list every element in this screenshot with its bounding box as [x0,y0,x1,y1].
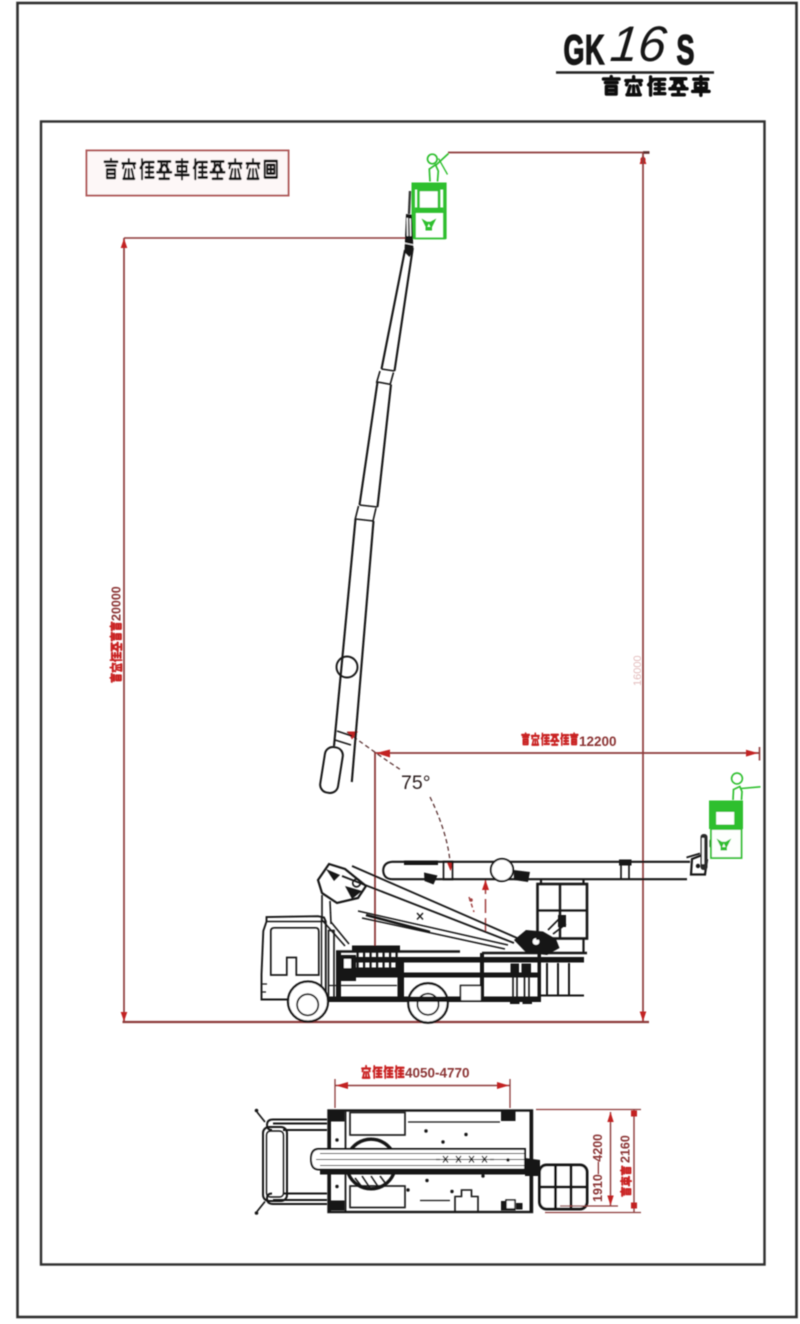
svg-text:16: 16 [608,16,670,72]
svg-text:75°: 75° [401,772,431,794]
svg-text:S: S [677,27,695,73]
svg-text:2160: 2160 [619,1135,633,1163]
svg-text:GK: GK [564,27,606,73]
svg-text:20000: 20000 [110,586,124,621]
svg-text:16000: 16000 [632,655,644,686]
svg-text:12200: 12200 [579,734,617,749]
svg-text:1910—4200: 1910—4200 [591,1134,605,1202]
svg-text:4050-4770: 4050-4770 [405,1066,470,1081]
